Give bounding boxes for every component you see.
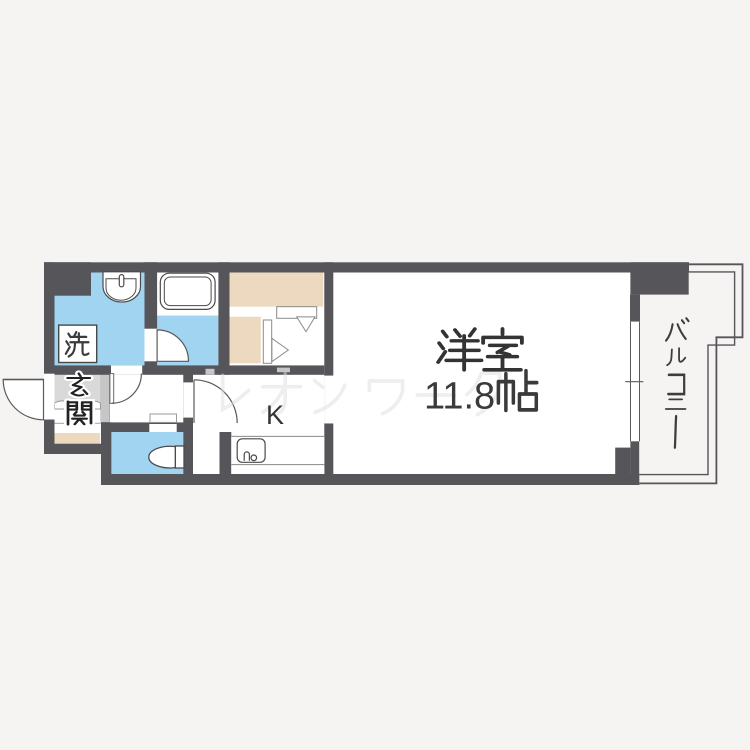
svg-text:K: K <box>266 400 284 430</box>
svg-text:11.8: 11.8 <box>424 376 495 418</box>
